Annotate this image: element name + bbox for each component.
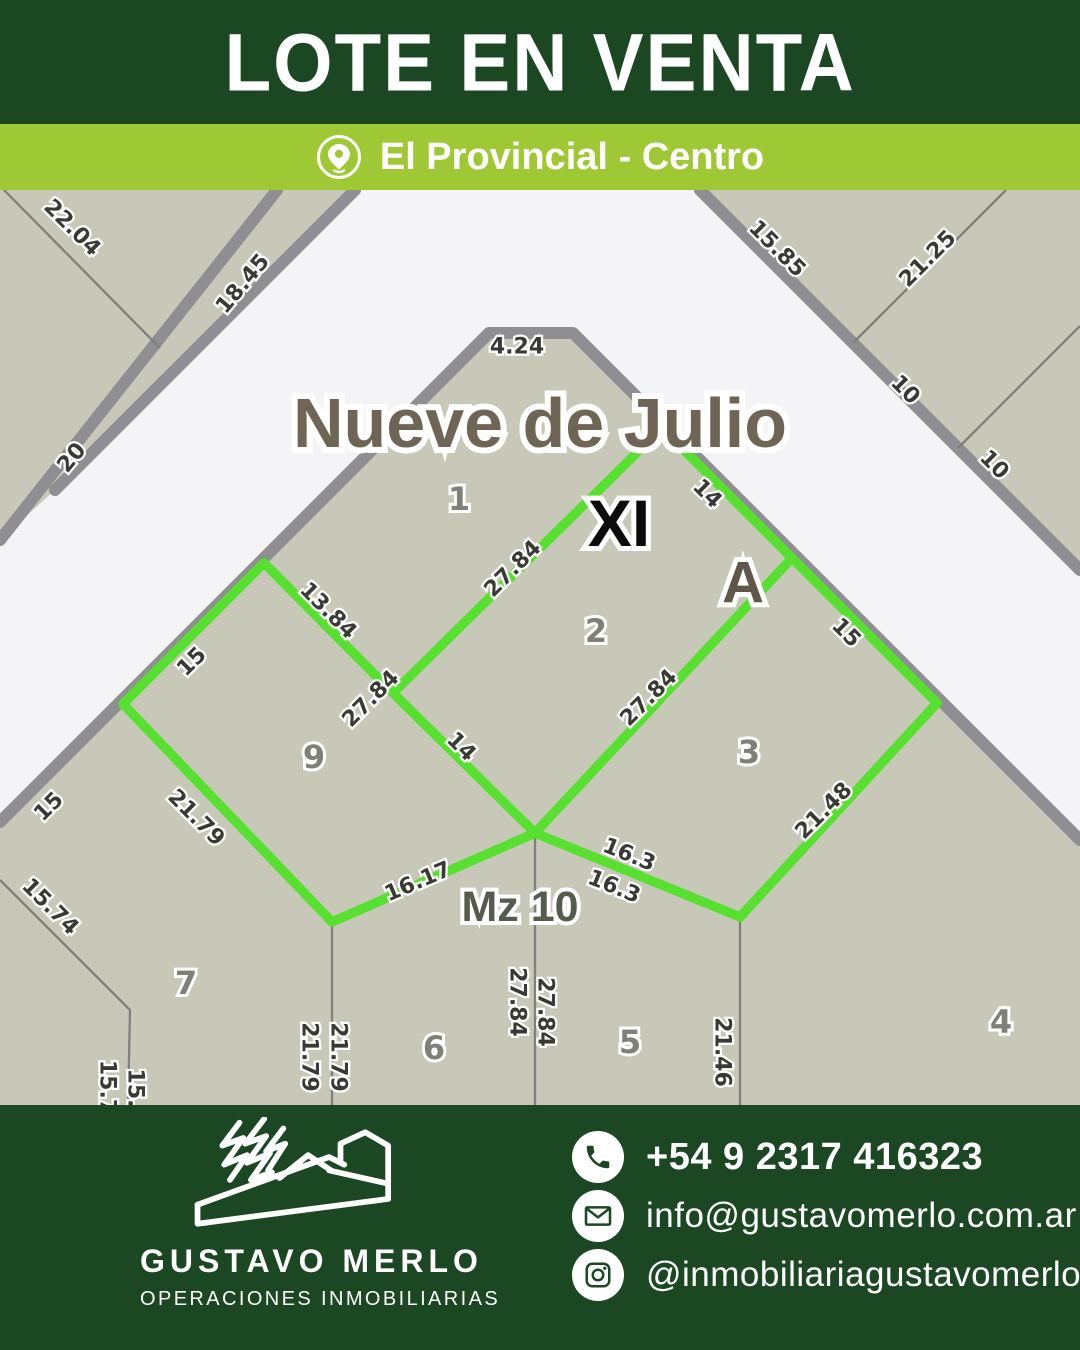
contact-row-email: info@gustavomerlo.com.ar [572,1190,1080,1242]
email-address: info@gustavomerlo.com.ar [646,1196,1077,1236]
location-pin-icon [316,134,362,180]
building-logo [185,1117,435,1239]
measurement-label: 21.79 [326,1022,351,1092]
tree-scribble-icon [266,1128,285,1170]
location-bar: El Provincial - Centro [0,124,1080,190]
zone-roman-label: XI [588,486,650,560]
measurement-label: 21.79 [297,1022,322,1092]
parcel-map-svg: 22.0418.452015.8521.2510104.2427.8427.84… [0,190,1080,1105]
lot-number-label: 2 [585,612,607,650]
brand-block: GUSTAVO MERLO OPERACIONES INMOBILIARIAS [140,1117,480,1311]
measurement-label: 27.84 [533,977,558,1047]
lot-number-label: 4 [990,1003,1012,1041]
brand-name: GUSTAVO MERLO [140,1243,480,1280]
measurement-label: 4.24 [490,335,544,360]
cadastral-map: 22.0418.452015.8521.2510104.2427.8427.84… [0,190,1080,1105]
tree-scribble-icon [222,1123,247,1180]
measurement-label: 15. [123,1069,148,1105]
title-bar: LOTE EN VENTA [0,0,1080,124]
contact-row-instagram: @inmobiliariagustavomerlo [572,1249,1080,1301]
phone-icon [572,1131,624,1183]
email-icon [572,1190,624,1242]
contact-list: +54 9 2317 416323 info@gustavomerlo.com.… [572,1131,1080,1301]
lot-number-label: 5 [619,1023,641,1061]
lot-number-label: 3 [738,733,760,771]
page-title: LOTE EN VENTA [224,14,855,110]
street-name-label: Nueve de Julio [293,384,787,462]
lot-number-label: 7 [175,964,197,1002]
footer: GUSTAVO MERLO OPERACIONES INMOBILIARIAS … [0,1105,1080,1350]
instagram-handle: @inmobiliariagustavomerlo [646,1255,1080,1295]
highlighted-lot-letter: A [722,551,764,616]
measurement-label: 21.46 [710,1017,735,1087]
lot-number-label: 6 [423,1029,445,1067]
brand-tagline: OPERACIONES INMOBILIARIAS [140,1288,480,1311]
lot-number-label: 9 [303,738,325,776]
flyer-page: LOTE EN VENTA El Provincial - Centro 22.… [0,0,1080,1350]
contact-row-phone: +54 9 2317 416323 [572,1131,1080,1183]
measurement-label: 27.84 [505,967,530,1037]
phone-number: +54 9 2317 416323 [646,1136,983,1179]
block-number-label: Mz 10 [461,883,578,931]
instagram-icon [572,1249,624,1301]
measurement-label: 15.7 [95,1060,120,1105]
location-label: El Provincial - Centro [380,136,764,179]
lot-number-label: 1 [448,480,470,518]
